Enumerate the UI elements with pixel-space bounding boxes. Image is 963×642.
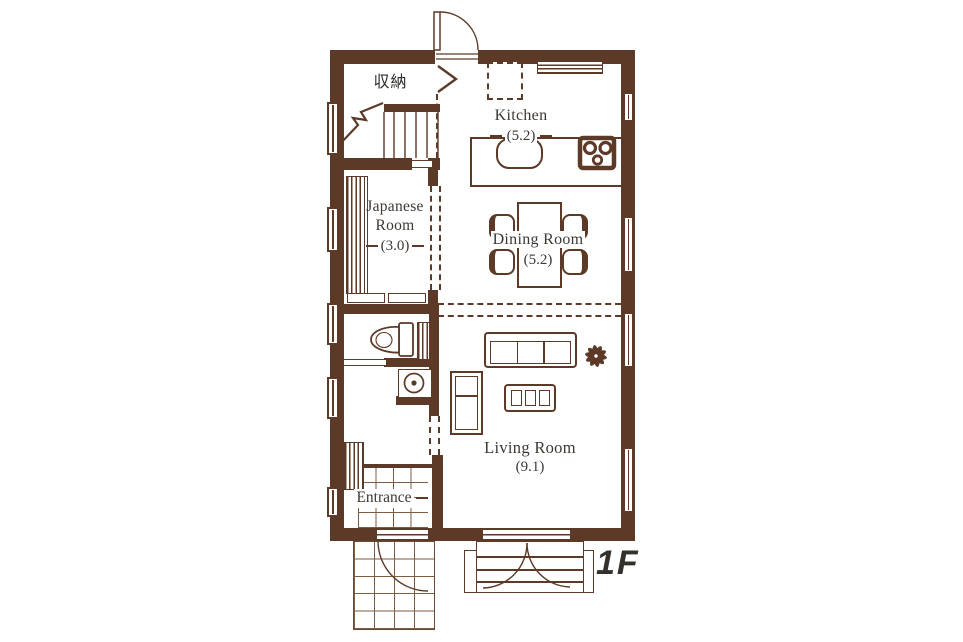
living-sliding-door bbox=[483, 528, 570, 541]
room-label-japanese: Japanese Room (3.0) bbox=[351, 198, 439, 255]
sofa-cushion bbox=[517, 341, 545, 364]
window-toilet bbox=[327, 303, 339, 345]
terrace-step-line bbox=[476, 569, 584, 571]
dining-area: (5.2) bbox=[522, 252, 555, 268]
tv-board bbox=[450, 371, 483, 435]
toilet-shelf bbox=[417, 322, 430, 360]
storage-opening-dash bbox=[436, 94, 440, 158]
terrace-step-line bbox=[476, 556, 584, 558]
leader-dash bbox=[416, 497, 428, 499]
japanese-name: Japanese Room bbox=[351, 198, 439, 236]
room-label-storage: 収納 bbox=[344, 72, 437, 92]
leader-dash bbox=[366, 245, 378, 247]
kitchen-name: Kitchen bbox=[460, 106, 582, 126]
dining-living-boundary bbox=[438, 303, 621, 317]
back-door-threshold bbox=[436, 54, 478, 59]
window-dining bbox=[623, 216, 634, 273]
leader-dash bbox=[490, 135, 502, 137]
sofa-cushion bbox=[543, 341, 571, 364]
kitchen-area: (5.2) bbox=[505, 127, 538, 145]
room-label-kitchen: Kitchen (5.2) bbox=[460, 106, 582, 145]
toilet-bowl bbox=[371, 327, 399, 353]
window-washroom bbox=[327, 377, 339, 419]
window-entrance bbox=[327, 487, 339, 517]
stairs-up-arrow bbox=[338, 103, 383, 146]
stairs-treads bbox=[384, 112, 438, 158]
kitchen-cupboard bbox=[537, 61, 603, 74]
wall-japanese-toilet bbox=[330, 304, 438, 314]
washroom-vanity bbox=[398, 369, 432, 398]
front-door-threshold bbox=[377, 528, 428, 541]
sofa bbox=[484, 332, 577, 368]
floor-plan: 収納 Kitchen (5.2) Japanese Room (3.0) Din… bbox=[0, 0, 963, 642]
folding-door bbox=[438, 66, 456, 92]
wall-stairs-japanese-a bbox=[330, 158, 412, 170]
porch-tile-floor bbox=[353, 541, 435, 630]
sofa-cushion bbox=[490, 341, 518, 364]
shoe-cabinet bbox=[344, 442, 364, 490]
leader-dash bbox=[540, 135, 552, 137]
wall-bottom-c bbox=[570, 528, 635, 541]
fusuma-panel bbox=[388, 293, 426, 303]
living-low-table bbox=[504, 384, 556, 412]
fusuma-panel bbox=[347, 293, 385, 303]
washroom-slider bbox=[344, 359, 386, 366]
storage-label-text: 収納 bbox=[373, 72, 407, 91]
room-label-dining: Dining Room (5.2) bbox=[468, 230, 608, 269]
japanese-area: (3.0) bbox=[381, 237, 410, 255]
toilet-tank bbox=[399, 323, 413, 356]
wall-bottom-a bbox=[330, 528, 377, 541]
terrace-inner-step bbox=[476, 541, 584, 593]
window-living-lower bbox=[623, 447, 634, 513]
table-tray bbox=[525, 390, 536, 406]
wall-top-left bbox=[330, 50, 435, 64]
leader-dash bbox=[412, 245, 424, 247]
floor-number-label: 1F bbox=[596, 544, 640, 583]
window-living-upper bbox=[623, 312, 634, 368]
window-stairwell bbox=[327, 102, 339, 155]
entrance-name: Entrance bbox=[354, 489, 413, 508]
japanese-entry-slider bbox=[412, 160, 432, 168]
back-door-arc bbox=[440, 12, 478, 50]
toilet-bowl-inner bbox=[376, 333, 392, 348]
hall-living-opening bbox=[429, 416, 440, 455]
refrigerator-space bbox=[487, 62, 523, 100]
back-door-leaf bbox=[434, 12, 440, 50]
plant-icon bbox=[585, 345, 608, 368]
wall-stairs-top-bar bbox=[384, 104, 440, 112]
dining-name: Dining Room bbox=[491, 231, 586, 248]
living-name: Living Room bbox=[464, 438, 596, 458]
table-tray bbox=[539, 390, 550, 406]
living-area: (9.1) bbox=[464, 458, 596, 476]
room-label-entrance: Entrance bbox=[346, 488, 436, 508]
room-label-living: Living Room (9.1) bbox=[464, 438, 596, 476]
entrance-step-edge bbox=[358, 464, 432, 468]
table-tray bbox=[511, 390, 522, 406]
window-japanese-room bbox=[327, 207, 339, 252]
terrace-step-line bbox=[476, 581, 584, 583]
window-kitchen bbox=[623, 92, 634, 122]
